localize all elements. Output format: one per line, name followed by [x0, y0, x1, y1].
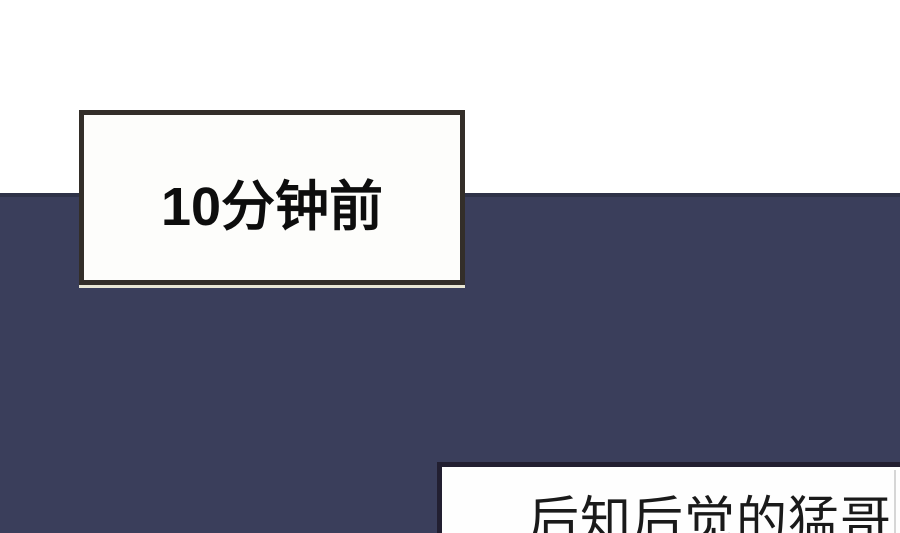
- time-caption-text: 10分钟前: [161, 180, 383, 234]
- speech-text: 后知后觉的猛哥: [528, 495, 892, 533]
- time-caption-box: 10分钟前: [79, 110, 465, 285]
- page-edge-line: [894, 470, 896, 533]
- comic-panel: 10分钟前 后知后觉的猛哥: [0, 0, 900, 533]
- speech-box: 后知后觉的猛哥: [437, 462, 900, 533]
